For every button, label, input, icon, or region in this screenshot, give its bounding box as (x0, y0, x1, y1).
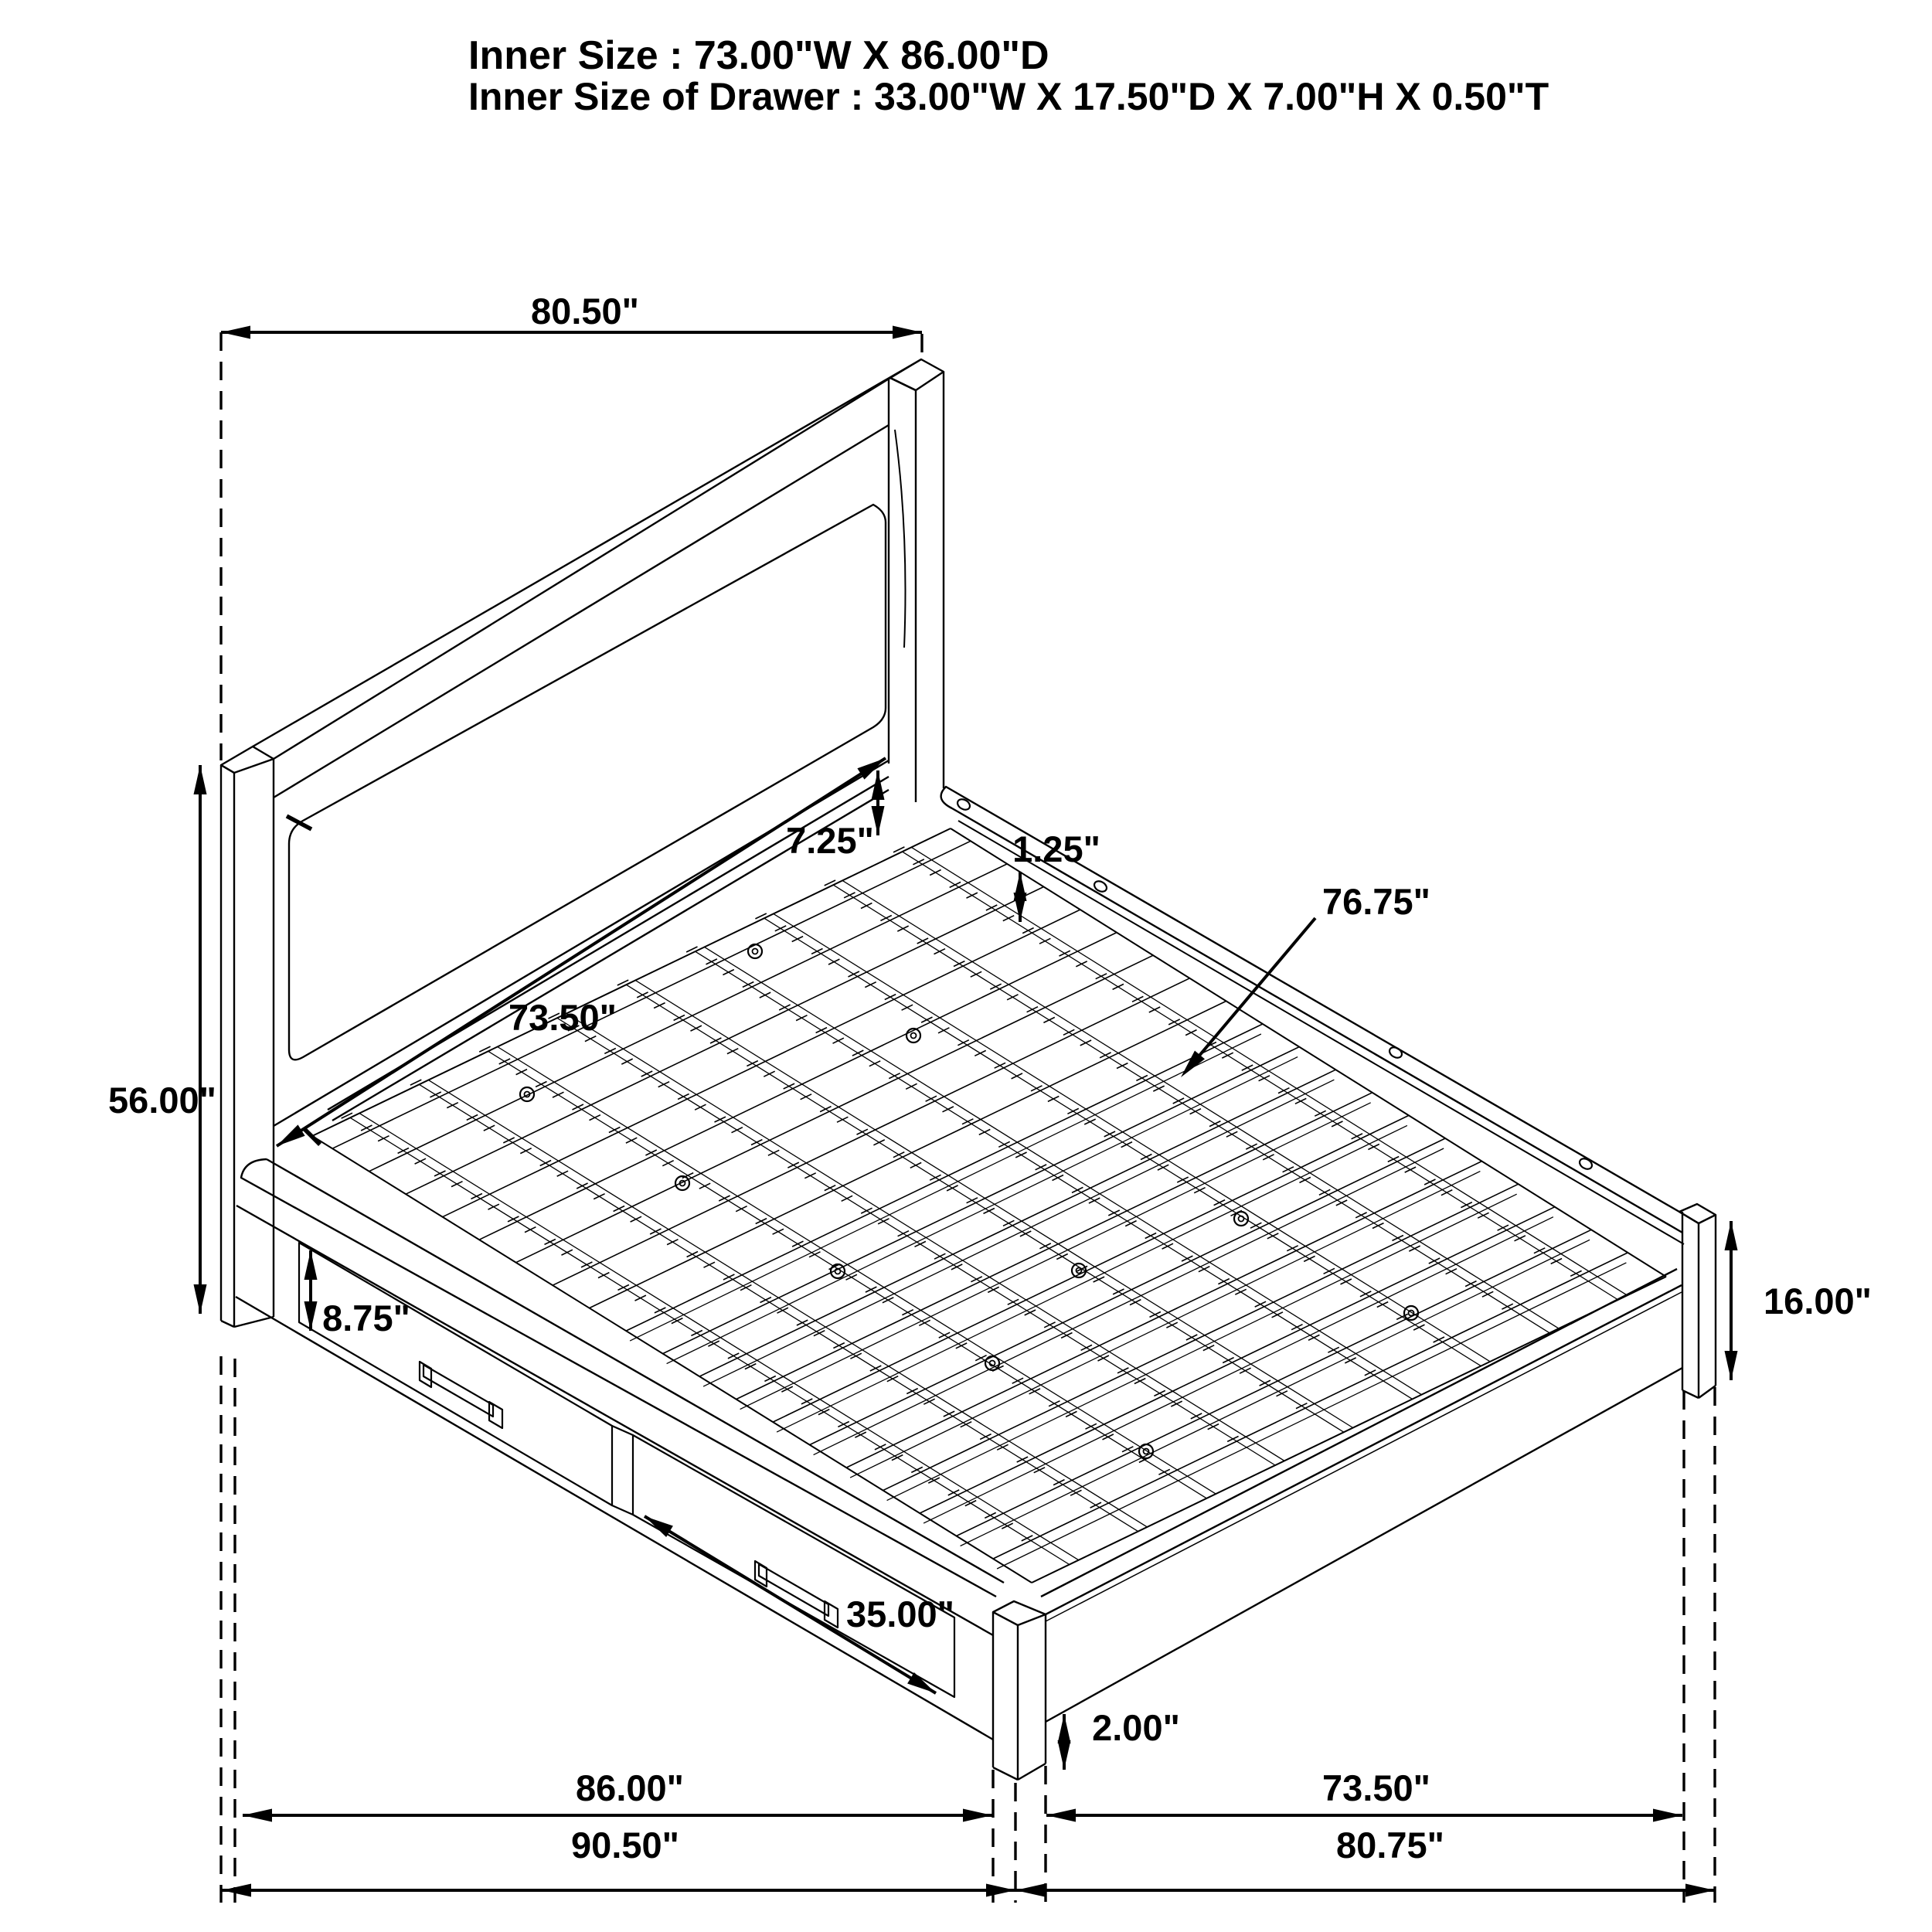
svg-text:Inner Size of Drawer : 33.00"W: Inner Size of Drawer : 33.00"W X 17.50"D… (468, 75, 1549, 118)
svg-text:35.00": 35.00" (846, 1594, 954, 1634)
svg-text:73.50": 73.50" (1322, 1767, 1430, 1808)
svg-text:56.00": 56.00" (108, 1080, 216, 1121)
svg-text:1.25": 1.25" (1012, 828, 1100, 869)
svg-text:86.00": 86.00" (576, 1767, 684, 1808)
svg-text:76.75": 76.75" (1322, 881, 1430, 922)
svg-text:80.50": 80.50" (531, 291, 639, 332)
svg-text:7.25": 7.25" (786, 820, 874, 861)
svg-text:Inner Size : 73.00"W X 86.00"D: Inner Size : 73.00"W X 86.00"D (468, 33, 1049, 78)
svg-text:16.00": 16.00" (1764, 1281, 1872, 1321)
svg-text:73.50": 73.50" (509, 997, 617, 1038)
svg-text:90.50": 90.50" (571, 1825, 679, 1866)
svg-text:2.00": 2.00" (1092, 1707, 1180, 1748)
svg-text:8.75": 8.75" (322, 1298, 410, 1338)
svg-text:80.75": 80.75" (1336, 1825, 1444, 1866)
